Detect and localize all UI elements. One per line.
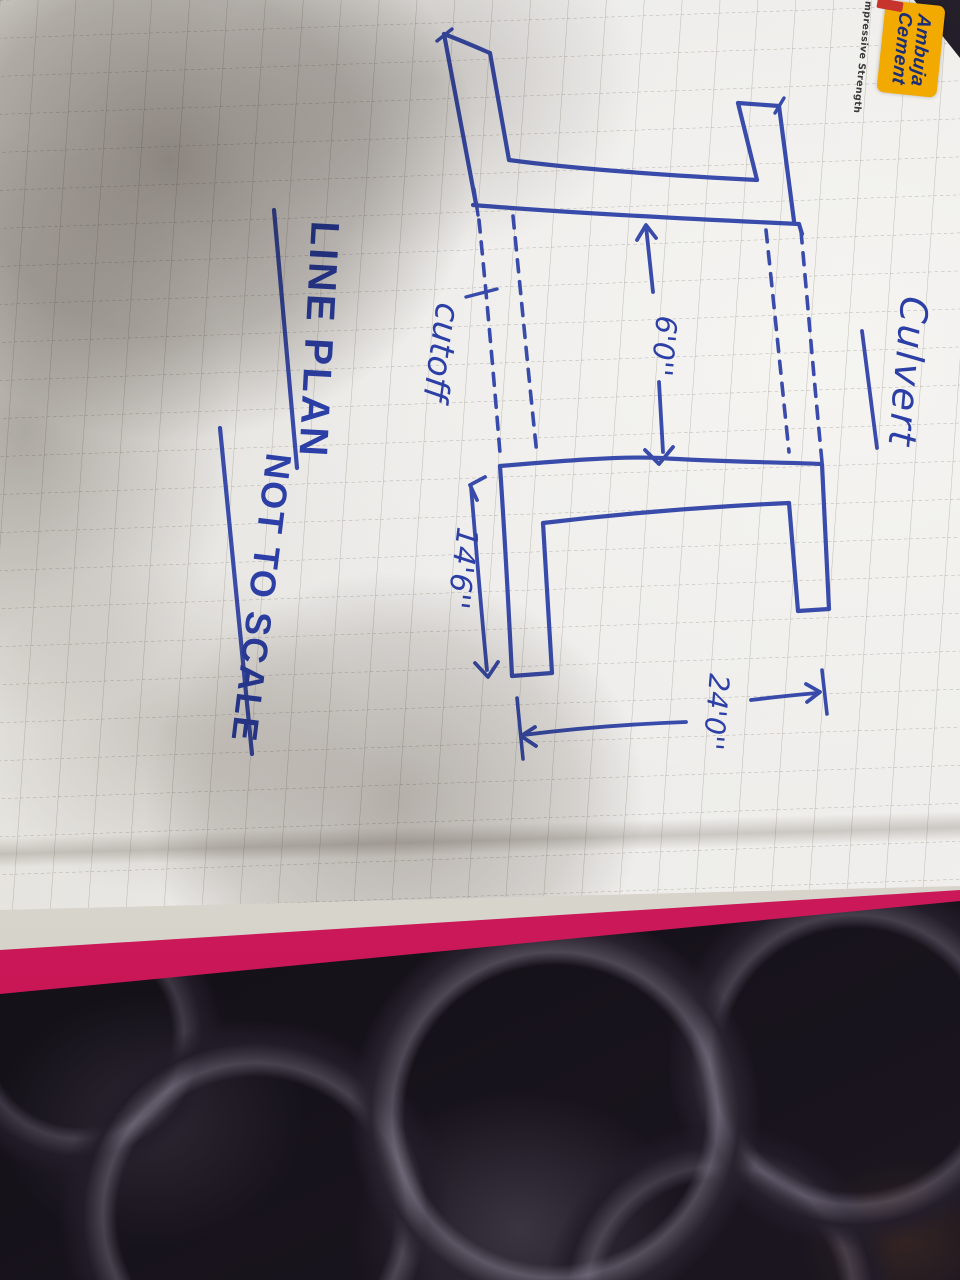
- upper-left-wingwall-outer: [444, 34, 476, 204]
- upper-left-wingwall-cap: [444, 34, 490, 53]
- dim-overall-label: 24'0'': [696, 672, 736, 751]
- upper-right-wingwall-outer: [779, 106, 794, 221]
- cutoff-leader-tick: [466, 289, 497, 297]
- lower-left-wingwall-inner: [543, 523, 552, 673]
- upper-right-wingwall-inner: [738, 103, 757, 180]
- lower-right-wingwall-cap: [798, 609, 829, 611]
- lower-band-inner-line: [543, 503, 789, 523]
- upper-band-outer-line: [473, 205, 802, 234]
- dim-span-arrow-down: [645, 447, 673, 464]
- dim-span-shaft: [646, 226, 653, 292]
- lower-right-wingwall-inner: [789, 503, 798, 611]
- dim-overall-tick-right: [822, 670, 827, 714]
- notebook-photo-scene: Culvert LINE PLAN NOT TO SCALE cutoff 6'…: [0, 0, 960, 1280]
- dim-overall-shaft: [523, 722, 686, 735]
- hidden-wall-dashed: [479, 220, 500, 453]
- dim-span-label: 6'0'': [644, 314, 683, 378]
- hidden-wall-dashed: [801, 231, 822, 462]
- title-underline: [862, 331, 877, 448]
- hidden-wall-dashed: [766, 230, 789, 452]
- dim-span-shaft: [659, 382, 663, 452]
- dim-overall-shaft: [751, 693, 817, 700]
- tick: [474, 189, 478, 215]
- upper-band-inner-line: [509, 160, 757, 180]
- hidden-wall-dashed: [513, 216, 537, 455]
- upper-left-wingwall-inner: [490, 53, 509, 160]
- lower-left-wingwall-cap: [512, 673, 552, 676]
- ambuja-cement-logo: Ambuja Cement: [876, 0, 945, 98]
- culvert-line-plan-drawing: [0, 0, 960, 1280]
- upper-right-wingwall-cap: [738, 103, 779, 106]
- dim-overall-tick-left: [517, 698, 523, 759]
- lower-left-wingwall-outer: [500, 466, 512, 676]
- lower-right-wingwall-outer: [822, 464, 829, 609]
